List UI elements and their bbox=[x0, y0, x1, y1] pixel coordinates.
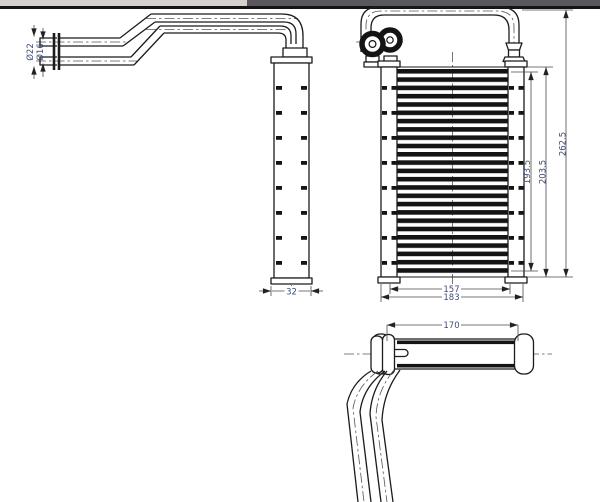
tank-top-plate bbox=[271, 57, 312, 63]
pipe-outer-diameter-label: Ø22 bbox=[25, 43, 36, 61]
right-tank bbox=[508, 67, 524, 277]
core-fin-matrix bbox=[397, 67, 508, 277]
drawing-canvas: Ø22 Ø16 32 193.5 203.5 bbox=[0, 0, 600, 502]
pipe-inner-diameter-label: Ø16 bbox=[35, 43, 46, 61]
left-tank bbox=[381, 67, 397, 277]
dim-pipe-diameters: Ø22 Ø16 bbox=[25, 25, 46, 79]
tank-body bbox=[274, 63, 309, 278]
pipe-collar-b bbox=[383, 335, 395, 375]
heater-core-technical-drawing: Ø22 Ø16 32 193.5 203.5 bbox=[0, 0, 600, 502]
core-height-label: 193.5 bbox=[523, 160, 533, 184]
dim-overall-height: 262.5 bbox=[522, 10, 573, 277]
overall-height-label: 262.5 bbox=[559, 132, 569, 156]
top-view bbox=[344, 334, 552, 502]
front-view bbox=[356, 7, 527, 298]
pipe-collar-a bbox=[371, 336, 383, 373]
tank-height-label: 203.5 bbox=[539, 160, 549, 184]
tank-depth-label: 32 bbox=[286, 288, 297, 298]
side-view bbox=[36, 14, 312, 294]
dim-tank-depth: 32 bbox=[259, 286, 323, 298]
right-end-cap bbox=[515, 334, 534, 374]
top-view-width-label: 170 bbox=[443, 321, 459, 331]
tank-bottom-plate bbox=[271, 278, 312, 284]
tank-inlet-collar bbox=[283, 48, 307, 57]
dim-top-view-width: 170 bbox=[387, 320, 518, 341]
overall-width-label: 183 bbox=[443, 293, 459, 303]
